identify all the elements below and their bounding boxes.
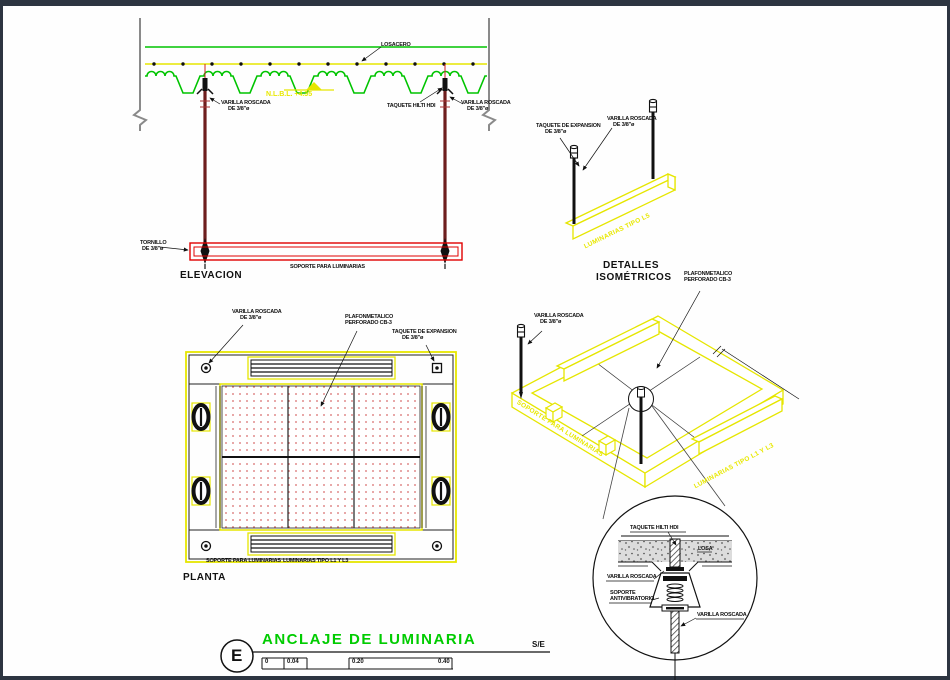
- label-varilla-right-2: DE 3/8"ø: [467, 106, 488, 112]
- elevation-view: [134, 18, 495, 269]
- level-marker: [284, 82, 334, 90]
- label-detail-losa: LOSA: [698, 546, 712, 552]
- label-plan-varilla-2: DE 3/8"ø: [240, 315, 261, 321]
- label-frame-plafon-2: PERFORADO CB-3: [684, 277, 731, 283]
- plan-view: [186, 325, 456, 562]
- label-frame-varilla-2: DE 3/8"ø: [540, 319, 561, 325]
- drawing-title: ANCLAJE DE LUMINARIA: [262, 631, 476, 648]
- label-detail-varilla-b: VARILLA ROSCADA: [697, 612, 747, 618]
- detail-letter: E: [231, 646, 242, 666]
- label-plan-plafon-2: PERFORADO CB-3: [345, 320, 392, 326]
- label-plan-soporte: SOPORTE PARA LUMINARIAS: [206, 558, 281, 564]
- anchor-cylinder: [650, 99, 657, 112]
- label-taquete-hilti: TAQUETE HILTI HDI: [387, 103, 435, 109]
- label-losacero: LOSACERO: [381, 42, 411, 48]
- hanger-rod-left: [197, 64, 213, 269]
- luminaire-strip-top: [248, 357, 395, 379]
- label-detail-varilla-a: VARILLA ROSCADA: [607, 574, 657, 580]
- scale-note: S/E: [532, 640, 545, 649]
- label-taquete-exp-2: DE 3/8"ø: [545, 129, 566, 135]
- scale-tick-0: 0: [265, 659, 268, 665]
- label-level: N.L.B.L. +4.35: [266, 91, 312, 98]
- iso-frame: [512, 291, 799, 519]
- scale-tick-020: 0.20: [352, 659, 364, 665]
- scale-tick-040: 0.40: [438, 659, 450, 665]
- label-varilla-iso-2: DE 3/8"ø: [613, 122, 634, 128]
- label-soporte-elev: SOPORTE PARA LUMINARIAS: [290, 264, 365, 270]
- cad-drawing-page: LOSACERO VARILLA ROSCADA DE 3/8"ø N.L.B.…: [0, 0, 950, 680]
- scale-tick-004: 0.04: [287, 659, 299, 665]
- view-title-detalles-2: ISOMÉTRICOS: [596, 272, 666, 283]
- luminaire-strip-bottom: [248, 533, 395, 555]
- view-title-detalles-1: DETALLES: [596, 260, 666, 271]
- threaded-rod: [671, 611, 679, 653]
- detail-blowup: [593, 496, 757, 680]
- label-detail-taquete: TAQUETE HILTI HDI: [630, 525, 678, 531]
- label-detail-soporte-2: ANTIVIBRATORIO: [610, 596, 654, 602]
- support-bar: [190, 243, 462, 260]
- hanger-rod-right: [437, 64, 453, 269]
- view-title-elevacion: ELEVACION: [180, 270, 242, 281]
- label-varilla-left-2: DE 3/8"ø: [228, 106, 249, 112]
- anchor-cylinder: [571, 145, 578, 158]
- label-plan-taquete-2: DE 3/8"ø: [402, 335, 423, 341]
- view-title-planta: PLANTA: [183, 572, 226, 583]
- label-plan-luminarias: LUMINARIAS TIPO L1 Y L3: [283, 558, 348, 564]
- label-tornillo-2: DE 3/8"ø: [142, 246, 163, 252]
